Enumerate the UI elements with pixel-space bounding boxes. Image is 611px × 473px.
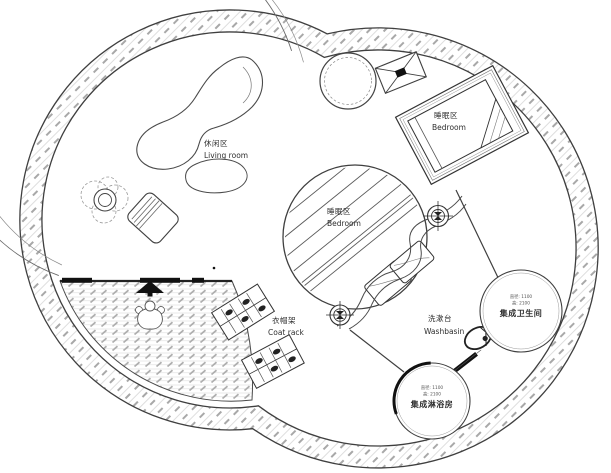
bedroom-upper-label-zh: 睡眠区	[434, 111, 458, 120]
bathroom-spec-height: 高: 2100	[512, 300, 530, 307]
bathroom-spec-diameter: 直径: 1100	[510, 293, 533, 300]
round-table	[320, 53, 376, 109]
window-mullion	[192, 278, 204, 283]
window-mullion	[62, 278, 92, 283]
bedroom-center-label-zh: 睡眠区	[327, 207, 351, 216]
washbasin-label-en: Washbasin	[424, 327, 465, 336]
washbasin-label-zh: 洗漱台	[428, 313, 452, 323]
bathroom-pod-circle: 直径: 1100 高: 2100 集成卫生间	[480, 270, 562, 352]
living-room-label-zh: 休闲区	[204, 138, 228, 148]
window-mullion	[140, 278, 180, 283]
coat-rack-label-en: Coat rack	[268, 328, 305, 337]
umbrella-stem	[148, 293, 153, 297]
shower-pod-circle: 直径: 1100 高: 2100 集成淋浴房	[394, 363, 470, 439]
floor-plan-svg: 睡眠区 Bedroom 睡眠区 Bedroom	[0, 0, 611, 473]
floor-plan-page: 睡眠区 Bedroom 睡眠区 Bedroom	[0, 0, 611, 473]
living-room-label-en: Living room	[204, 151, 248, 160]
shower-spec-diameter: 直径: 1100	[421, 384, 444, 391]
reference-dot	[213, 267, 216, 270]
bedroom-center-label-en: Bedroom	[327, 219, 361, 228]
shower-pod-label: 集成淋浴房	[410, 399, 454, 409]
coat-rack-label-zh: 衣帽架	[272, 315, 296, 325]
coffee-table	[186, 159, 248, 193]
bedroom-upper-label-en: Bedroom	[432, 123, 466, 132]
bathroom-pod-label: 集成卫生间	[499, 308, 543, 318]
shower-spec-height: 高: 2100	[423, 391, 441, 398]
